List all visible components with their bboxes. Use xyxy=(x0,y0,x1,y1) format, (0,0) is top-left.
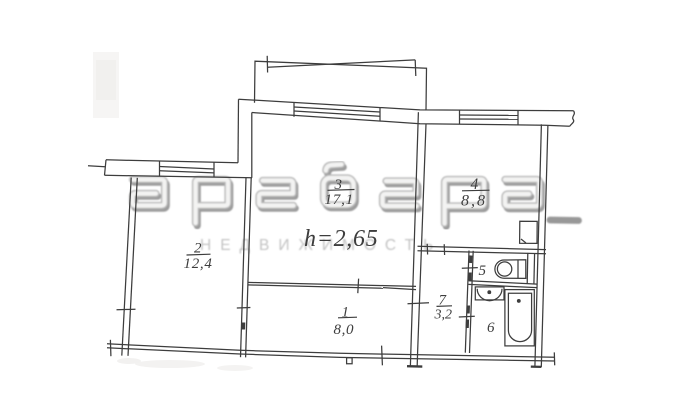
svg-text:h=2,65: h=2,65 xyxy=(304,226,378,252)
svg-text:6: 6 xyxy=(487,320,495,336)
svg-text:5: 5 xyxy=(479,263,487,279)
svg-text:17,1: 17,1 xyxy=(325,192,354,208)
svg-text:12,4: 12,4 xyxy=(184,256,213,272)
svg-text:8,8: 8,8 xyxy=(461,193,487,210)
svg-text:8,0: 8,0 xyxy=(334,322,355,338)
svg-text:3,2: 3,2 xyxy=(434,308,453,323)
